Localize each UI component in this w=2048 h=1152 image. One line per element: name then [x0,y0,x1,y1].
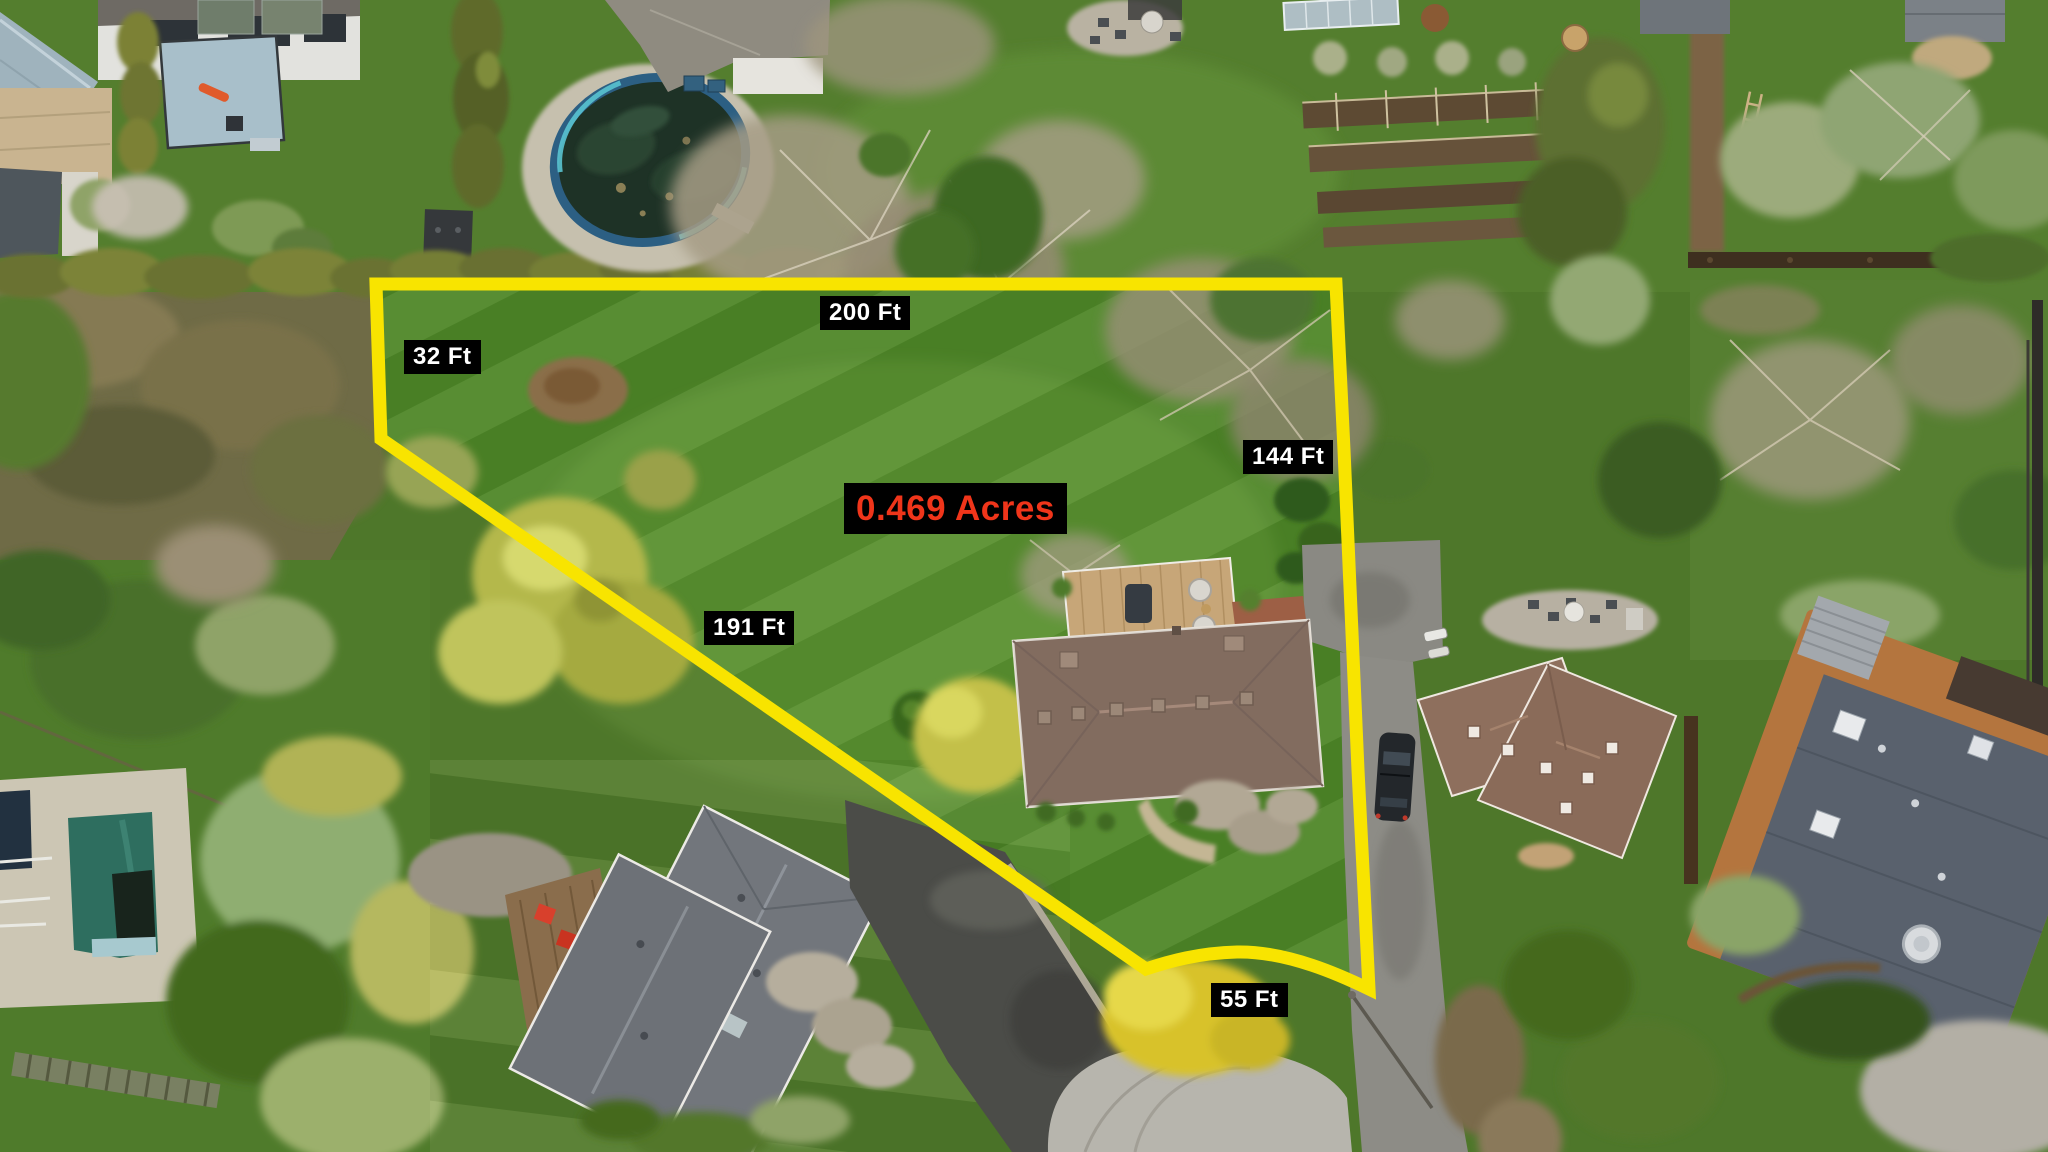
hot-tub [1125,584,1152,623]
dark-fence-vertical [1684,716,1698,884]
dimension-label-diagonal: 191 Ft [704,611,794,645]
area-label: 0.469 Acres [844,483,1067,534]
greenhouse [1283,0,1398,30]
dimension-label-left: 32 Ft [404,340,481,374]
dirt-patch [528,357,628,423]
dark-fence-horizontal [1688,252,1946,268]
roof [1013,620,1323,807]
garage-roof [0,168,62,258]
top-patio [1067,0,1183,56]
dimension-label-right: 144 Ft [1243,440,1333,474]
pool-steps [92,937,157,957]
blossom-tree [92,175,188,239]
small-lawn-tree [624,450,696,510]
aerial-scene [0,0,2048,1152]
conifer-column [451,0,509,208]
garden-box [262,0,322,34]
aerial-photo: 200 Ft 32 Ft 144 Ft 191 Ft 55 Ft 0.469 A… [0,0,2048,1152]
deck-chair [1189,579,1211,601]
hedge-vertical [117,12,162,174]
suv [1374,732,1416,822]
dimension-label-top: 200 Ft [820,296,910,330]
round-tub [1562,25,1588,51]
dimension-label-bottom: 55 Ft [1211,983,1288,1017]
garden-box [198,0,254,34]
